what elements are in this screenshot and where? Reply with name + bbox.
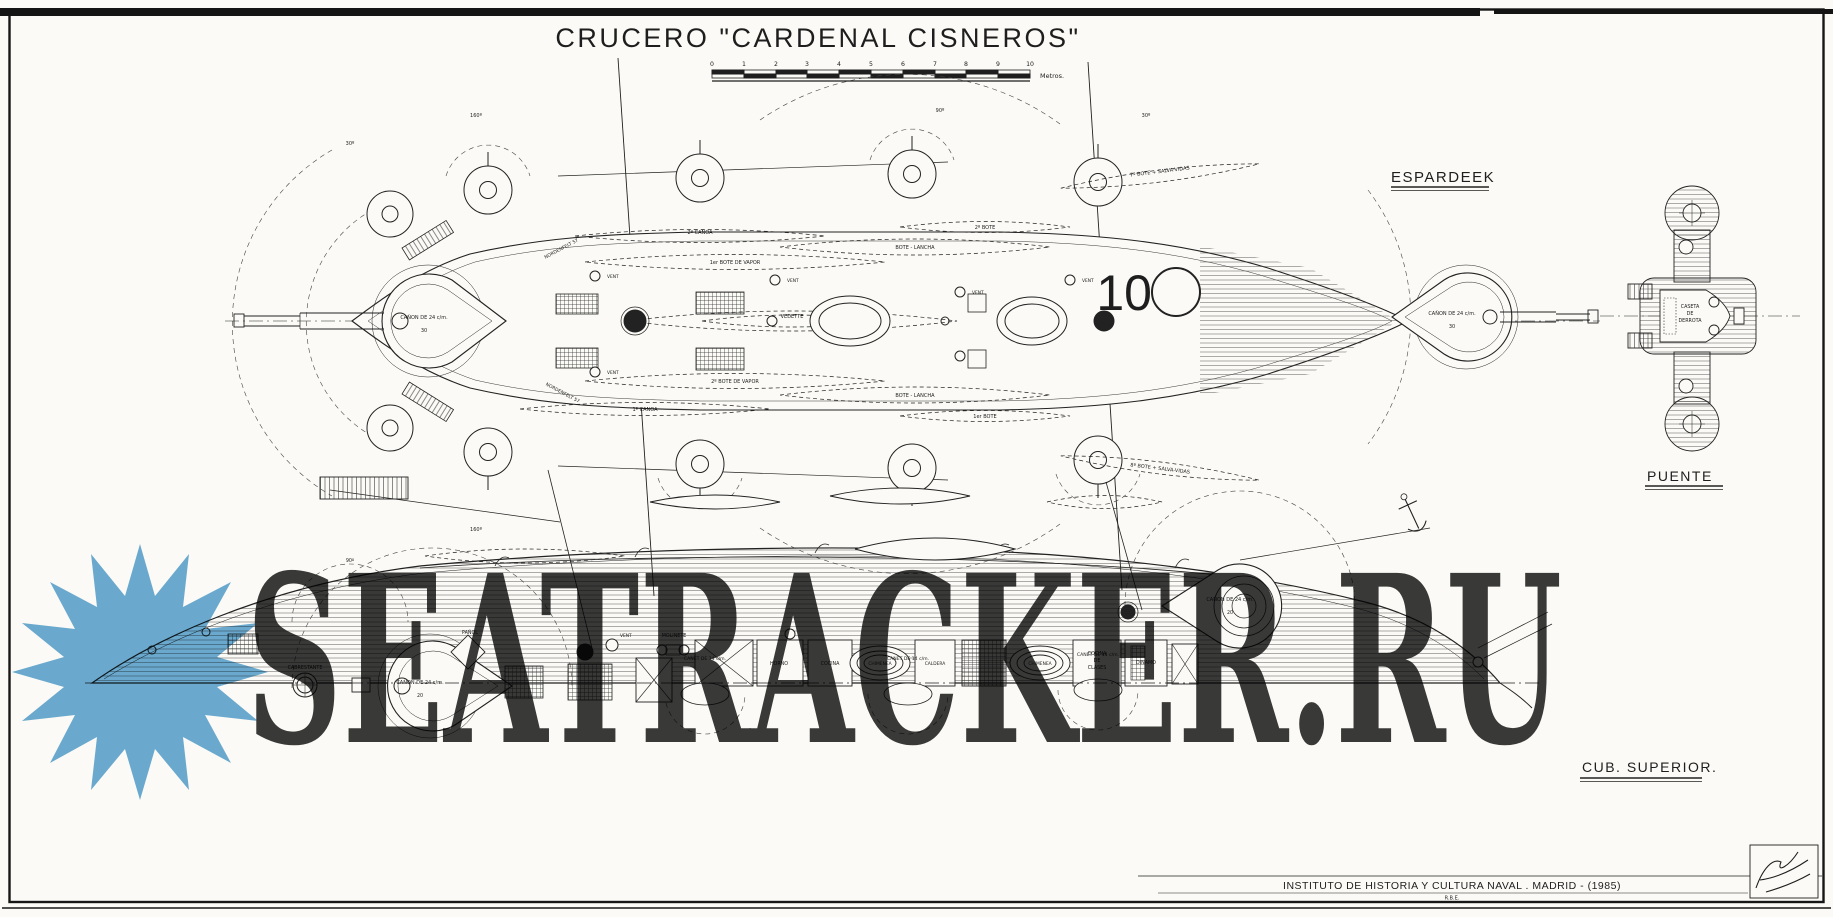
cub-superior-label: CUB. SUPERIOR. [1582,759,1717,775]
scale-unit: Metros. [1040,72,1064,80]
credit-ref: R.B.E. [1445,896,1460,902]
svg-text:4: 4 [837,61,841,68]
label-vent: VENT [607,274,619,280]
espardeek-aft-turret [1392,265,1598,369]
page-title: CRUCERO "CARDENAL CISNEROS" [555,23,1080,53]
label-turret-number: 30 [421,328,427,334]
label-caseta: CASETA [1681,304,1700,310]
label-botevapor2: 2º BOTE DE VAPOR [711,379,759,385]
scale-bar: 01 23 45 67 89 10 Metros. [710,61,1064,81]
svg-text:160º: 160º [470,527,483,533]
label-bote1: 1er BOTE [973,414,996,420]
signature-box [1750,845,1818,898]
label-molinete: MOLINETE [662,633,687,639]
svg-text:VENT: VENT [787,278,799,284]
label-canon-24-aft: CAÑON DE 24 c/m. [1428,310,1476,317]
title-block: INSTITUTO DE HISTORIA Y CULTURA NAVAL . … [1138,845,1822,902]
label-canoa2: 2ª CANOA [687,230,713,236]
svg-text:DE: DE [1687,311,1694,317]
frame-mark-10: 10 [1096,265,1152,321]
label-canon24-cub-aft: CAÑON DE 24 c/m. [1206,596,1254,603]
label-horno: HORNO [770,661,788,667]
svg-text:5: 5 [869,61,873,68]
svg-text:2: 2 [774,61,778,68]
cub-superior-plan: CABRESTANTE CAÑON DE 24 c/m. 20 PAÑOL VE… [85,470,1717,782]
label-canet-2: CANET DE 14 c/m. [887,656,929,662]
espardeek-label: ESPARDEEK [1391,169,1495,186]
label-botevapor1: 1er BOTE DE VAPOR [710,260,761,266]
label-panol: PAÑOL [462,629,478,636]
svg-text:10: 10 [1026,61,1034,68]
svg-text:VENT: VENT [972,290,984,296]
label-chimenea-2: CHIMENEA [1028,661,1051,667]
label-canet-1: CANET DE 14 c/m. [684,656,726,662]
label-bote2: 2º BOTE [975,225,996,231]
label-botelancha-top: BOTE - LANCHA [895,245,935,251]
label-cocina: COCINA [821,661,840,667]
espardeek-plan: 10 CAÑON DE 24 c/m. 30 CAÑON DE 24 c/ [225,58,1600,596]
svg-text:20: 20 [1227,610,1233,616]
label-vent-cub: VENT [620,633,632,639]
label-bote7: 7º BOTE + SALVA-VIDAS [1130,165,1190,178]
label-vedette: VEDETTE [781,314,804,320]
cub-superior-label-group: CUB. SUPERIOR. [1580,759,1717,782]
svg-text:8: 8 [964,61,968,68]
x-brace-hatch [636,658,672,702]
label-deg90-cub: 90º [346,558,355,564]
label-cabrestante: CABRESTANTE [288,665,323,671]
svg-text:DERROTA: DERROTA [1678,318,1702,324]
capstan [293,673,317,697]
scan-artifact-band [0,8,1480,16]
label-bote8: 8º BOTE + SALVA-VIDAS [1130,462,1190,475]
label-deg160: 160º [470,113,483,119]
label-canet-3: CANET DE 14 c/m. [1077,652,1119,658]
puente-label-group: PUENTE [1645,468,1723,490]
label-canon24-cub-fore: CAÑON DE 24 c/m. [396,679,444,686]
svg-text:1: 1 [742,61,746,68]
svg-text:6: 6 [901,61,905,68]
svg-text:20: 20 [417,693,423,699]
anchor [1394,490,1429,535]
puente-label: PUENTE [1647,468,1713,484]
credit-line: INSTITUTO DE HISTORIA Y CULTURA NAVAL . … [1283,880,1621,892]
label-dinamo: DINAMO [1136,660,1156,666]
svg-text:3: 3 [805,61,809,68]
label-canoa1: 1ª CANOA [632,407,658,413]
espardeek-label-group: ESPARDEEK [1391,169,1495,191]
svg-text:VENT: VENT [607,370,619,376]
svg-text:9: 9 [996,61,1000,68]
label-canon-24-fore: CAÑON DE 24 c/m. [400,314,448,321]
blueprint-sheet: CRUCERO "CARDENAL CISNEROS" 01 23 45 67 … [0,0,1833,917]
svg-text:0: 0 [710,61,714,68]
svg-text:DE: DE [1094,658,1101,664]
drawing-canvas: CRUCERO "CARDENAL CISNEROS" 01 23 45 67 … [0,0,1833,917]
svg-text:7: 7 [933,61,937,68]
label-deg30: 30º [346,141,355,147]
svg-text:30: 30 [1449,324,1455,330]
label-botelancha-bottom: BOTE - LANCHA [895,393,935,399]
svg-text:VENT: VENT [1082,278,1094,284]
aft-deckhouse [320,477,408,499]
svg-text:CLASES: CLASES [1088,665,1107,671]
svg-text:30º: 30º [1142,113,1151,119]
label-deg90: 90º [936,108,945,114]
puente-plan: CASETA DE DERROTA PUENTE [1600,186,1800,490]
